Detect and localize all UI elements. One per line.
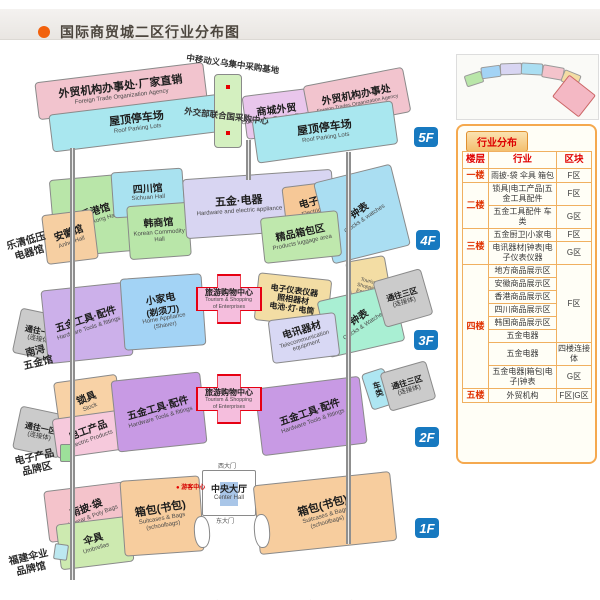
map-caption: 国际商贸城二区行业布局及交通图 The Major Industry layou… xyxy=(120,596,450,600)
legend-floor-cell: 四楼 xyxy=(463,265,489,389)
right-pole xyxy=(346,152,351,544)
f2-tourism-shopping-center: 旅游购物中心 Tourism & Shopping of Enterprises xyxy=(196,374,262,424)
legend-block-cell: G区 xyxy=(557,206,592,229)
f2-side-label-electronics: 电子产品 品牌区 xyxy=(14,448,58,480)
f3-telecom-equipment: 电讯器材 Telecommunication equipment xyxy=(268,312,341,364)
f1-east-gate-label: 东大门 xyxy=(216,516,234,525)
f1-center-hall: 中央大厅 Center Hall xyxy=(202,470,256,516)
legend-industry-cell: 锁具|电工产品|五金工具配件 xyxy=(489,183,557,206)
floor-badge-4f: 4F xyxy=(416,230,440,250)
f1-west-gate-label: 西大门 xyxy=(218,461,236,470)
center-pole xyxy=(246,140,251,180)
legend-row: 一楼 雨披-袋 伞具 箱包 F区 xyxy=(463,168,592,182)
floor-badge-3f: 3F xyxy=(414,330,438,350)
legend-floor-cell: 五楼 xyxy=(463,389,489,403)
f3-hardware-tools: 五金工具·配件 Hardware Tools & fittings xyxy=(40,282,133,365)
legend-table: 楼层 行业 区块 一楼 雨披-袋 伞具 箱包 F区 二楼 锁具|电工产品|五金工… xyxy=(462,151,592,403)
f2-hardware-tools-left: 五金工具·配件 Hardware Tools & fittings xyxy=(110,371,207,452)
legend-header-block: 区块 xyxy=(557,152,592,169)
legend-industry-cell: 外贸机构 xyxy=(489,389,557,403)
f1-visitor-center-text: 游客中心 xyxy=(181,485,205,491)
legend-block-cell: F区 xyxy=(557,265,592,343)
minimap-segment xyxy=(480,65,501,80)
legend-block-cell: G区 xyxy=(557,242,592,265)
legend-header-floor: 楼层 xyxy=(463,152,489,169)
page-title: 国际商贸城二区行业分布图 xyxy=(60,22,240,42)
f3-home-appliance: 小家电 (剃须刀) Home Appliance (Shaver) xyxy=(120,273,207,351)
f3-tourism-label: 旅游购物中心 xyxy=(205,288,253,297)
legend-industry-cell: 五金工具配件 车类 xyxy=(489,206,557,229)
f1-center-hall-sublabel: Center Hall xyxy=(214,495,244,502)
f1-center-hall-label: 中央大厅 xyxy=(211,484,247,494)
floor-badge-1f: 1F xyxy=(415,518,439,538)
legend-panel: 行业分布 楼层 行业 区块 一楼 雨披-袋 伞具 箱包 F区 二楼 锁具|电工产… xyxy=(456,124,597,464)
legend-row: 五楼 外贸机构 F区|G区 xyxy=(463,389,592,403)
title-bar: 国际商贸城二区行业分布图 xyxy=(0,8,600,40)
f3-tourism-shopping-center: 旅游购物中心 Tourism & Shopping of Enterprises xyxy=(196,274,262,324)
f1-bags-right: 箱包(书包) Suitcases & Bags (schoolbags) xyxy=(253,471,398,555)
floor-badge-2f: 2F xyxy=(415,427,439,447)
red-marker-icon xyxy=(226,85,230,89)
f4-korean-hall: 韩商馆 Korean Commodity Hall xyxy=(126,202,192,260)
legend-industry-cell: 安徽商品展示区 xyxy=(489,278,557,291)
f2-tourism-sublabel1: Tourism & Shopping xyxy=(206,397,253,403)
f4-side-label-yueqing: 乐清低压 电器馆 xyxy=(5,231,50,265)
floor-badge-5f: 5F xyxy=(414,127,438,147)
legend-header-industry: 行业 xyxy=(489,152,557,169)
minimap-segment xyxy=(500,63,522,76)
legend-block-cell: F区 xyxy=(557,168,592,182)
page: 国际商贸城二区行业分布图 外贸机构办事处·厂家直销 Foreign Trade … xyxy=(0,0,600,600)
legend-industry-cell: 雨披-袋 伞具 箱包 xyxy=(489,168,557,182)
floor-map: 外贸机构办事处·厂家直销 Foreign Trade Organization … xyxy=(0,40,455,600)
legend-industry-cell: 四川商品展示区 xyxy=(489,304,557,317)
legend-header-row: 楼层 行业 区块 xyxy=(463,152,592,169)
legend-title: 行业分布 xyxy=(466,131,528,152)
orange-bullet-icon xyxy=(38,26,50,38)
f1-side-label-fujian: 福建伞业 品牌馆 xyxy=(8,548,52,580)
legend-block-cell: F区|G区 xyxy=(557,389,592,403)
f3-tourism-sublabel2: of Enterprises xyxy=(213,304,245,310)
f1-escalator-left xyxy=(193,515,211,548)
red-marker-icon xyxy=(226,131,230,135)
legend-industry-cell: 五金厨卫|小家电 xyxy=(489,229,557,242)
f3-tourism-sublabel1: Tourism & Shopping xyxy=(206,297,253,303)
overview-minimap xyxy=(456,54,599,120)
legend-industry-cell: 地方商品展示区 xyxy=(489,265,557,278)
f2-tourism-label: 旅游购物中心 xyxy=(205,388,253,397)
f4-luggage-area: 精品箱包区 Products luggage area xyxy=(260,210,342,264)
legend-industry-cell: 韩国商品展示区 xyxy=(489,317,557,330)
legend-industry-cell: 电讯器材|钟表|电子仪表仪器 xyxy=(489,242,557,265)
legend-block-cell: F区 xyxy=(557,229,592,242)
f2-tourism-sublabel2: of Enterprises xyxy=(213,404,245,410)
legend-row: 三楼 五金厨卫|小家电 F区 xyxy=(463,229,592,242)
f1-visitor-center-label: ● 游客中心 xyxy=(176,482,205,491)
legend-industry-cell: 五金电器 xyxy=(489,330,557,343)
legend-block-cell: G区 xyxy=(557,366,592,389)
f4-korean-hall-sublabel: Korean Commodity Hall xyxy=(133,228,186,245)
minimap-district2-cluster xyxy=(552,75,596,118)
legend-industry-cell: 香港商品展示区 xyxy=(489,291,557,304)
legend-row: 二楼 锁具|电工产品|五金工具配件 F区 xyxy=(463,183,592,206)
legend-industry-cell: 五金电器 xyxy=(489,343,557,366)
minimap-segment xyxy=(521,62,544,75)
red-marker-icon: ● xyxy=(176,485,180,491)
f4-sichuan-hall-sublabel: Sichuan Hall xyxy=(131,194,165,203)
legend-floor-cell: 三楼 xyxy=(463,229,489,265)
legend-floor-cell: 二楼 xyxy=(463,183,489,229)
f2-connector-district3: 通往三区 (连接体) xyxy=(379,360,436,412)
legend-floor-cell: 一楼 xyxy=(463,168,489,182)
legend-block-cell: F区 xyxy=(557,183,592,206)
legend-block-cell: 四楼连接体 xyxy=(557,343,592,366)
legend-row: 四楼 地方商品展示区 F区 xyxy=(463,265,592,278)
left-pole xyxy=(70,148,75,580)
legend-industry-cell: 五金电器|箱包|电子|钟表 xyxy=(489,366,557,389)
map-caption-zh: 国际商贸城二区行业布局及交通图 xyxy=(120,596,450,600)
f1-small-block xyxy=(53,543,69,561)
